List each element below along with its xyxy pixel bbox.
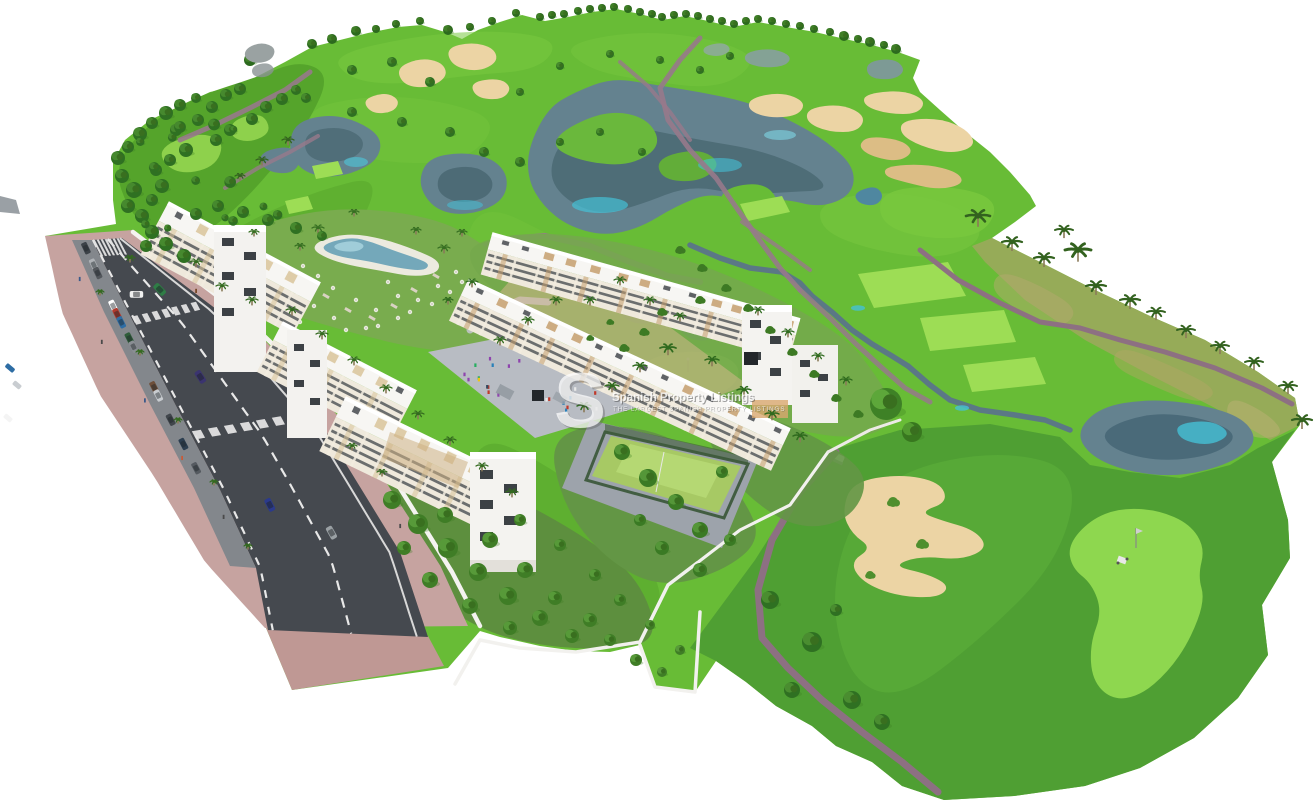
svg-text:Spanish Property Listings: Spanish Property Listings bbox=[612, 392, 755, 404]
svg-text:S: S bbox=[554, 356, 606, 444]
svg-text:THE LARGEST SPANISH PROPERTY L: THE LARGEST SPANISH PROPERTY LISTINGS bbox=[613, 406, 785, 413]
